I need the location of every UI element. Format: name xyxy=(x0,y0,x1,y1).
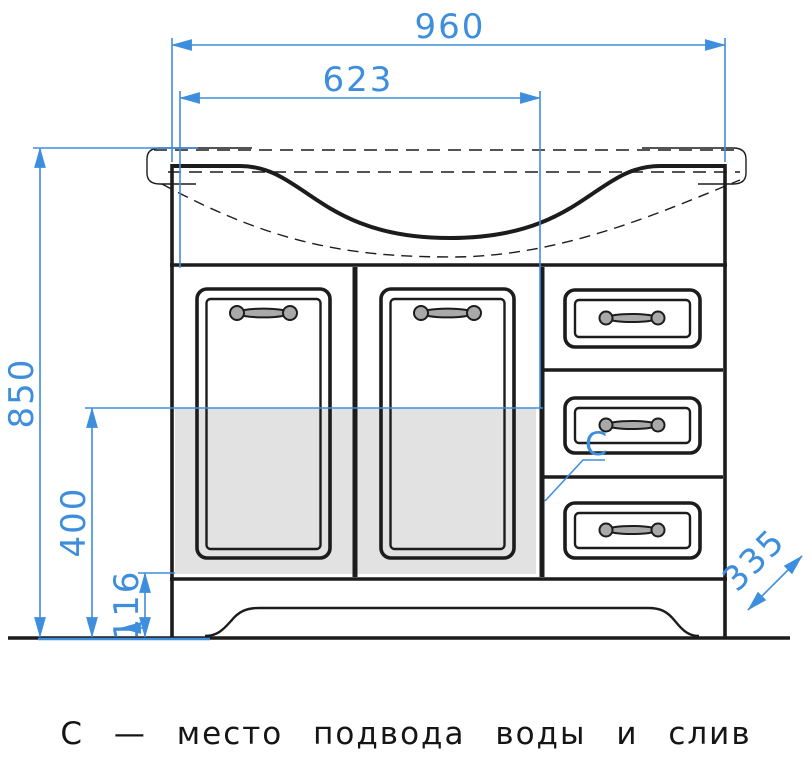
dim-depth: 335 xyxy=(715,521,802,610)
dim-basin-width-value: 623 xyxy=(323,60,394,100)
dim-plinth-height: 116 xyxy=(107,570,175,641)
drawer-3-handle xyxy=(600,524,665,537)
dim-lower-height-value: 400 xyxy=(54,487,94,558)
dim-overall-height: 850 xyxy=(2,148,198,637)
drawing-canvas: 960 623 850 400 11 xyxy=(0,0,812,772)
drawer-1-handle xyxy=(600,312,665,325)
drawer-1 xyxy=(565,290,700,347)
sink-bowl-hidden-curve xyxy=(162,180,740,257)
drawer-2-handle xyxy=(600,419,665,432)
sink xyxy=(147,148,746,257)
drawers xyxy=(565,290,700,558)
right-door-handle xyxy=(414,306,481,320)
caption: С — место подвода воды и слив xyxy=(0,710,812,760)
dim-plinth-height-value: 116 xyxy=(107,570,147,641)
dim-overall-width-value: 960 xyxy=(415,7,486,47)
marker-c-label: С xyxy=(585,425,607,463)
dim-overall-width: 960 xyxy=(172,7,725,162)
dim-overall-height-value: 850 xyxy=(2,358,42,429)
marker-c-leader xyxy=(545,460,605,501)
drawer-3 xyxy=(565,503,700,558)
sink-bowl-front-curve xyxy=(172,166,725,238)
plinth-kick-curve xyxy=(205,608,699,636)
left-door-handle xyxy=(230,306,297,320)
vanity-technical-drawing: 960 623 850 400 11 xyxy=(0,0,812,772)
